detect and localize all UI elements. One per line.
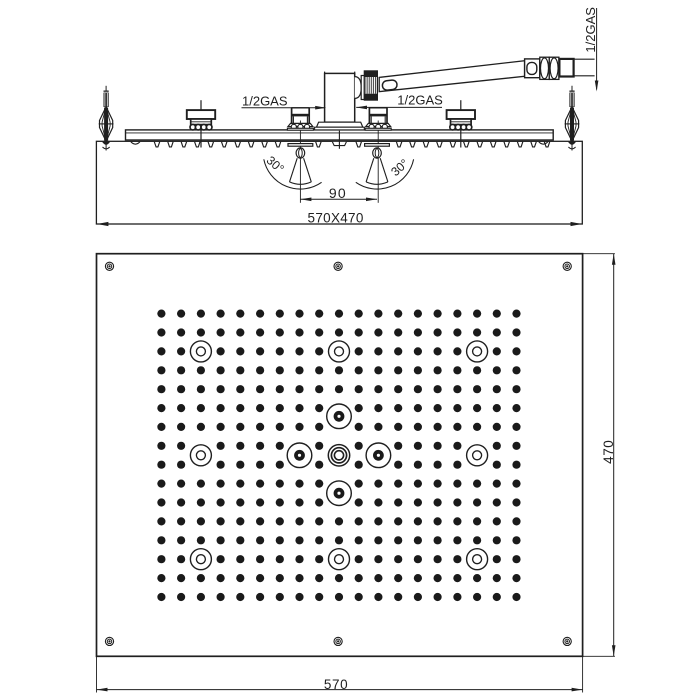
svg-text:470: 470: [601, 440, 616, 464]
svg-text:90: 90: [329, 185, 347, 201]
svg-text:1/2GAS: 1/2GAS: [583, 7, 598, 53]
svg-text:570: 570: [324, 677, 348, 692]
svg-text:570X470: 570X470: [308, 210, 364, 225]
svg-text:1/2GAS: 1/2GAS: [397, 93, 443, 108]
svg-text:1/2GAS: 1/2GAS: [242, 93, 288, 108]
